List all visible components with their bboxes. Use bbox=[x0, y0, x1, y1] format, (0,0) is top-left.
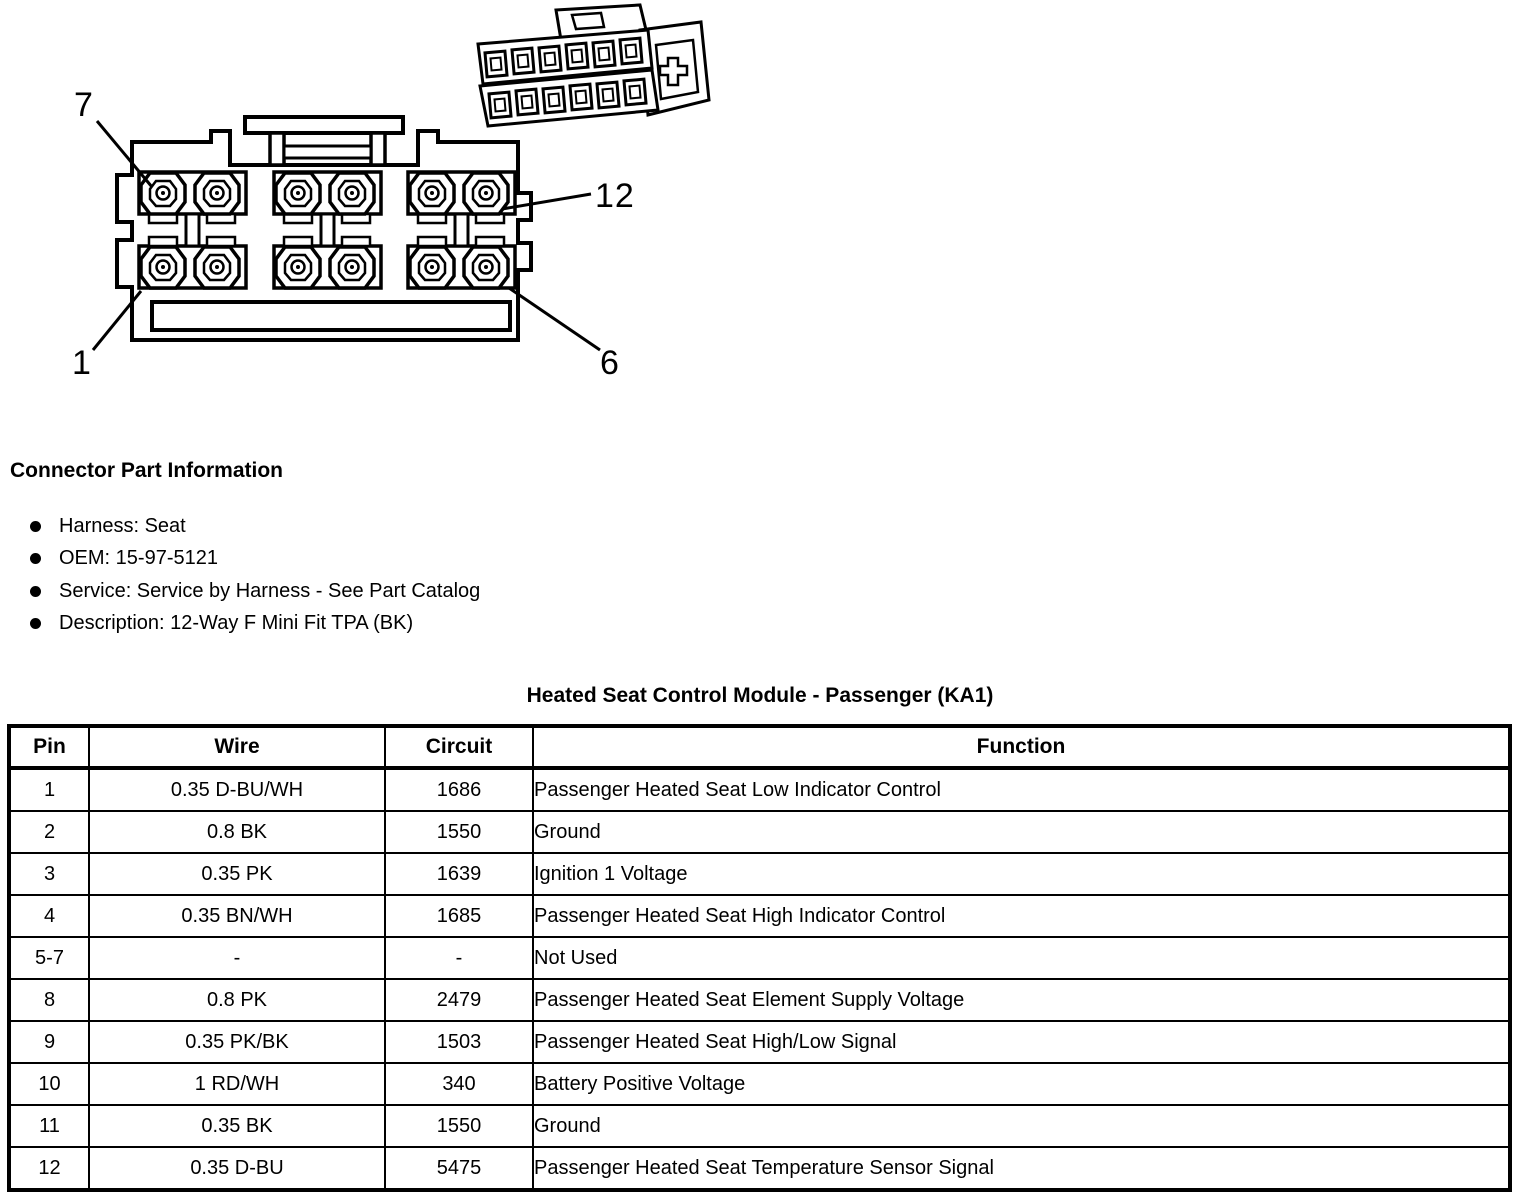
table-row: 120.35 D-BU5475Passenger Heated Seat Tem… bbox=[9, 1147, 1510, 1190]
col-header-circuit: Circuit bbox=[385, 726, 533, 768]
pin-cell: 9 bbox=[9, 1021, 89, 1063]
function-cell: Ground bbox=[533, 811, 1510, 853]
function-cell: Passenger Heated Seat Low Indicator Cont… bbox=[533, 768, 1510, 811]
connector-latch bbox=[245, 117, 403, 133]
pinout-table: Pin Wire Circuit Function 10.35 D-BU/WH1… bbox=[7, 724, 1512, 1192]
callout-pin-12: 12 bbox=[595, 179, 635, 213]
wire-cell: 0.8 BK bbox=[89, 811, 385, 853]
pinout-table-body: 10.35 D-BU/WH1686Passenger Heated Seat L… bbox=[9, 768, 1510, 1190]
wire-cell: 0.35 BN/WH bbox=[89, 895, 385, 937]
table-row: 30.35 PK1639Ignition 1 Voltage bbox=[9, 853, 1510, 895]
circuit-cell: - bbox=[385, 937, 533, 979]
table-row: 110.35 BK1550Ground bbox=[9, 1105, 1510, 1147]
callout-pin-1: 1 bbox=[72, 346, 92, 380]
bullet-icon bbox=[30, 521, 41, 532]
pin-cell: 12 bbox=[9, 1147, 89, 1190]
connector-info-item: OEM: 15-97-5121 bbox=[30, 543, 480, 576]
circuit-cell: 340 bbox=[385, 1063, 533, 1105]
connector-part-info-title: Connector Part Information bbox=[10, 459, 283, 483]
callout-pin-6: 6 bbox=[600, 346, 620, 380]
connector-diagram bbox=[0, 0, 760, 430]
function-cell: Not Used bbox=[533, 937, 1510, 979]
connector-info-text: Service: Service by Harness - See Part C… bbox=[59, 580, 480, 603]
connector-info-text: Description: 12-Way F Mini Fit TPA (BK) bbox=[59, 612, 413, 635]
callout-pin-7: 7 bbox=[74, 88, 94, 122]
col-header-wire: Wire bbox=[89, 726, 385, 768]
table-header-row: Pin Wire Circuit Function bbox=[9, 726, 1510, 768]
wire-cell: 0.35 PK/BK bbox=[89, 1021, 385, 1063]
wire-cell: 0.35 D-BU/WH bbox=[89, 768, 385, 811]
wire-cell: - bbox=[89, 937, 385, 979]
connector-front-view bbox=[117, 117, 531, 340]
wire-cell: 0.35 BK bbox=[89, 1105, 385, 1147]
function-cell: Passenger Heated Seat High/Low Signal bbox=[533, 1021, 1510, 1063]
wire-cell: 0.35 D-BU bbox=[89, 1147, 385, 1190]
circuit-cell: 2479 bbox=[385, 979, 533, 1021]
pin-cell: 4 bbox=[9, 895, 89, 937]
table-row: 10.35 D-BU/WH1686Passenger Heated Seat L… bbox=[9, 768, 1510, 811]
pin-cell: 10 bbox=[9, 1063, 89, 1105]
circuit-cell: 1685 bbox=[385, 895, 533, 937]
col-header-pin: Pin bbox=[9, 726, 89, 768]
connector-3d-view bbox=[478, 5, 709, 126]
pin-cell: 5-7 bbox=[9, 937, 89, 979]
col-header-function: Function bbox=[533, 726, 1510, 768]
function-cell: Passenger Heated Seat Temperature Sensor… bbox=[533, 1147, 1510, 1190]
wire-cell: 0.35 PK bbox=[89, 853, 385, 895]
function-cell: Ground bbox=[533, 1105, 1510, 1147]
service-manual-page: 7 12 1 6 Connector Part Information Harn… bbox=[0, 0, 1520, 1200]
circuit-cell: 5475 bbox=[385, 1147, 533, 1190]
table-row: 40.35 BN/WH1685Passenger Heated Seat Hig… bbox=[9, 895, 1510, 937]
table-row: 5-7--Not Used bbox=[9, 937, 1510, 979]
wire-cell: 0.8 PK bbox=[89, 979, 385, 1021]
connector-info-text: Harness: Seat bbox=[59, 515, 186, 538]
table-row: 90.35 PK/BK1503Passenger Heated Seat Hig… bbox=[9, 1021, 1510, 1063]
connector-info-item: Service: Service by Harness - See Part C… bbox=[30, 575, 480, 608]
pin-cell: 11 bbox=[9, 1105, 89, 1147]
bullet-icon bbox=[30, 618, 41, 629]
circuit-cell: 1503 bbox=[385, 1021, 533, 1063]
function-cell: Ignition 1 Voltage bbox=[533, 853, 1510, 895]
connector-info-list: Harness: SeatOEM: 15-97-5121Service: Ser… bbox=[30, 510, 480, 640]
function-cell: Passenger Heated Seat Element Supply Vol… bbox=[533, 979, 1510, 1021]
table-row: 80.8 PK2479Passenger Heated Seat Element… bbox=[9, 979, 1510, 1021]
connector-bottom-rail bbox=[152, 302, 510, 330]
circuit-cell: 1550 bbox=[385, 811, 533, 853]
function-cell: Passenger Heated Seat High Indicator Con… bbox=[533, 895, 1510, 937]
connector-info-item: Description: 12-Way F Mini Fit TPA (BK) bbox=[30, 608, 480, 641]
pin-cell: 2 bbox=[9, 811, 89, 853]
circuit-cell: 1639 bbox=[385, 853, 533, 895]
pin-cell: 1 bbox=[9, 768, 89, 811]
bullet-icon bbox=[30, 586, 41, 597]
bullet-icon bbox=[30, 553, 41, 564]
table-row: 20.8 BK1550Ground bbox=[9, 811, 1510, 853]
connector-info-text: OEM: 15-97-5121 bbox=[59, 547, 218, 570]
table-title: Heated Seat Control Module - Passenger (… bbox=[0, 684, 1520, 708]
function-cell: Battery Positive Voltage bbox=[533, 1063, 1510, 1105]
table-row: 101 RD/WH340Battery Positive Voltage bbox=[9, 1063, 1510, 1105]
wire-cell: 1 RD/WH bbox=[89, 1063, 385, 1105]
circuit-cell: 1550 bbox=[385, 1105, 533, 1147]
connector-info-item: Harness: Seat bbox=[30, 510, 480, 543]
pin-cell: 8 bbox=[9, 979, 89, 1021]
pin-cell: 3 bbox=[9, 853, 89, 895]
circuit-cell: 1686 bbox=[385, 768, 533, 811]
